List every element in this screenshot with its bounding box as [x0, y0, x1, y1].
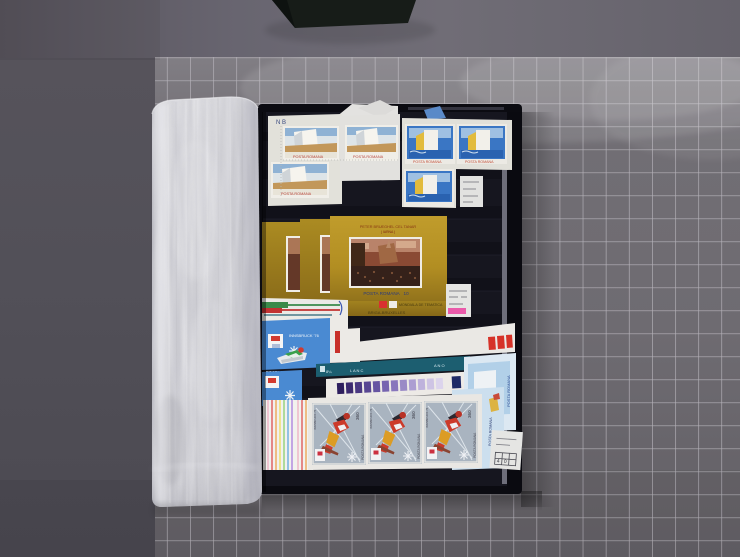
- svg-text:PETER BRUEGHEL CEL TANAR: PETER BRUEGHEL CEL TANAR: [360, 225, 417, 229]
- svg-text:360: 360: [411, 411, 416, 419]
- svg-text:POSTA ROMANA: POSTA ROMANA: [293, 155, 324, 159]
- svg-text:INNSBRUCK 76: INNSBRUCK 76: [425, 407, 429, 428]
- svg-text:POSTA ROMANA: POSTA ROMANA: [417, 433, 421, 459]
- svg-text:POSTA ROMANA: POSTA ROMANA: [465, 160, 494, 164]
- svg-text:POSTA ROMANA 10: POSTA ROMANA 10: [363, 291, 409, 296]
- svg-text:N B: N B: [276, 120, 286, 126]
- svg-text:POSTA ROMANA: POSTA ROMANA: [413, 160, 442, 164]
- svg-text:8¼: 8¼: [326, 369, 332, 374]
- svg-text:POSTA ROMANA: POSTA ROMANA: [281, 192, 312, 196]
- svg-text:L A N C: L A N C: [350, 368, 364, 373]
- svg-text:A N O: A N O: [434, 363, 445, 368]
- svg-text:INNSBRUCK '76: INNSBRUCK '76: [289, 333, 320, 338]
- svg-text:360: 360: [467, 410, 472, 418]
- svg-text:360: 360: [355, 412, 360, 420]
- svg-text:POSTA ROMANA: POSTA ROMANA: [361, 434, 365, 460]
- svg-text:BRIGA-BRUXELLES: BRIGA-BRUXELLES: [368, 310, 406, 315]
- svg-text:POSTA ROMANA: POSTA ROMANA: [506, 375, 511, 407]
- svg-text:POSTA ROMANA: POSTA ROMANA: [353, 155, 384, 159]
- svg-text:INNSBRUCK 76: INNSBRUCK 76: [369, 408, 373, 429]
- svg-text:( IARNA ): ( IARNA ): [381, 230, 395, 234]
- svg-text:POSTA ROMANA: POSTA ROMANA: [473, 432, 477, 458]
- svg-text:MONDIALA DE TEMATICA: MONDIALA DE TEMATICA: [399, 303, 443, 307]
- svg-text:INNSBRUCK 76: INNSBRUCK 76: [313, 409, 317, 430]
